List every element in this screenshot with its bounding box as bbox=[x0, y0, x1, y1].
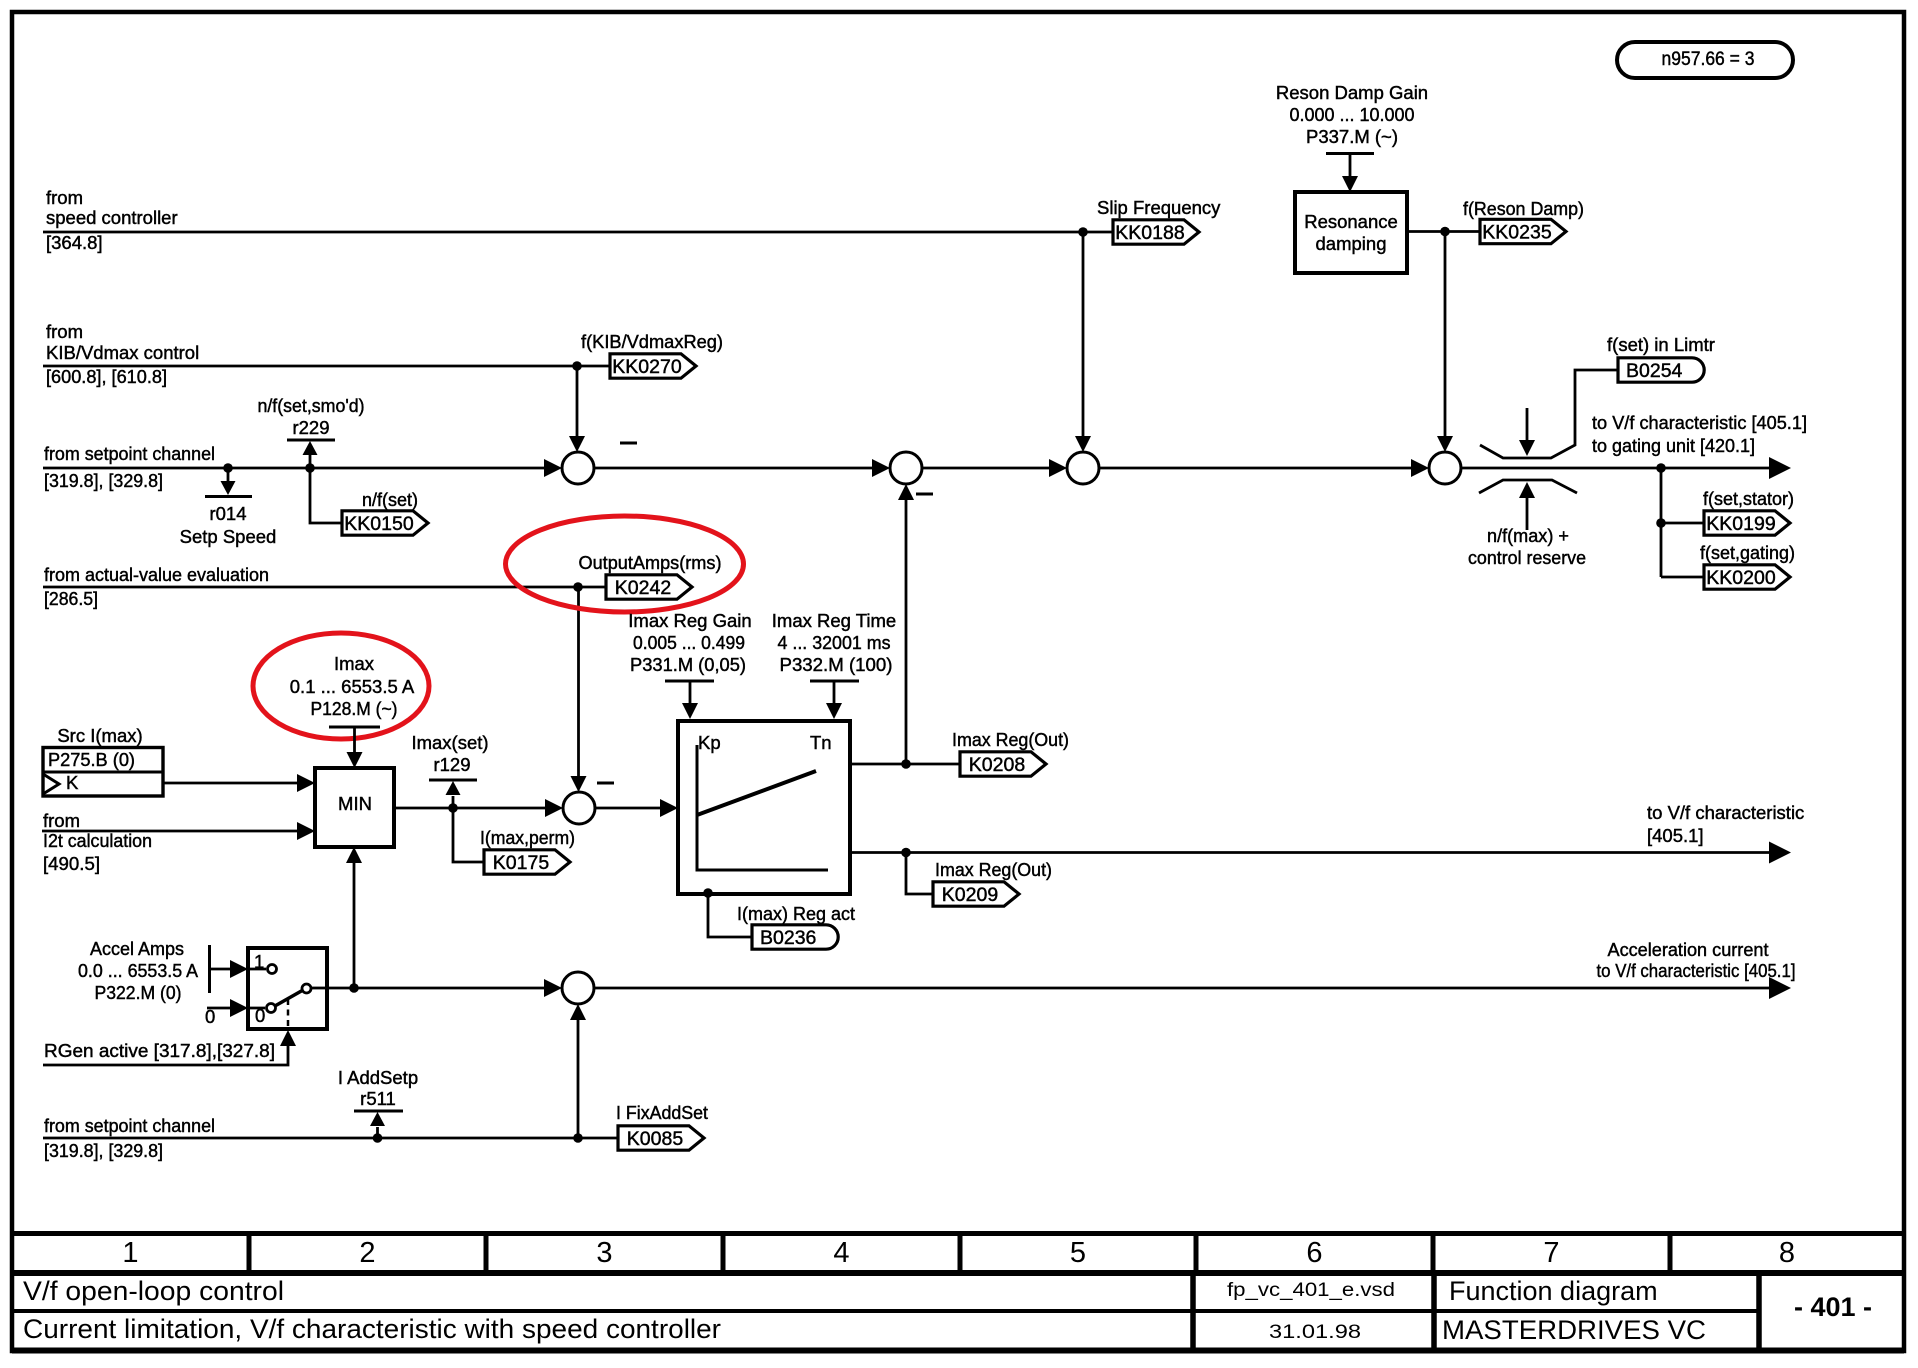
svg-text:5: 5 bbox=[1070, 1237, 1086, 1269]
svg-text:from setpoint channel: from setpoint channel bbox=[44, 1115, 215, 1136]
svg-text:K0209: K0209 bbox=[942, 884, 998, 906]
svg-text:K0175: K0175 bbox=[493, 852, 550, 874]
svg-text:1: 1 bbox=[122, 1237, 138, 1269]
svg-text:from actual-value evaluation: from actual-value evaluation bbox=[44, 564, 269, 585]
svg-text:4 ... 32001 ms: 4 ... 32001 ms bbox=[778, 632, 891, 653]
svg-text:speed controller: speed controller bbox=[46, 207, 178, 228]
svg-text:Slip Frequency: Slip Frequency bbox=[1097, 197, 1221, 218]
svg-text:[364.8]: [364.8] bbox=[46, 232, 103, 253]
svg-text:Accel Amps: Accel Amps bbox=[90, 938, 184, 959]
svg-text:from setpoint channel: from setpoint channel bbox=[44, 443, 215, 464]
svg-text:r229: r229 bbox=[292, 417, 329, 438]
svg-text:[490.5]: [490.5] bbox=[43, 853, 100, 874]
svg-text:control reserve: control reserve bbox=[1468, 547, 1586, 568]
svg-text:B0236: B0236 bbox=[760, 927, 816, 949]
svg-text:[286.5]: [286.5] bbox=[44, 588, 98, 609]
svg-text:2: 2 bbox=[359, 1237, 375, 1269]
svg-text:[600.8], [610.8]: [600.8], [610.8] bbox=[46, 366, 167, 387]
svg-text:to gating unit [420.1]: to gating unit [420.1] bbox=[1592, 435, 1755, 456]
svg-text:[405.1]: [405.1] bbox=[1647, 825, 1704, 846]
svg-text:P337.M (~): P337.M (~) bbox=[1306, 126, 1398, 147]
svg-text:P322.M (0): P322.M (0) bbox=[95, 982, 182, 1003]
svg-text:r129: r129 bbox=[433, 754, 470, 775]
svg-text:0: 0 bbox=[205, 1006, 215, 1027]
svg-text:fp_vc_401_e.vsd: fp_vc_401_e.vsd bbox=[1227, 1280, 1395, 1301]
svg-text:f(set,stator): f(set,stator) bbox=[1703, 488, 1794, 509]
svg-text:I(max,perm): I(max,perm) bbox=[480, 827, 575, 848]
svg-text:f(set) in Limtr: f(set) in Limtr bbox=[1607, 334, 1715, 355]
svg-text:P331.M (0,05): P331.M (0,05) bbox=[630, 654, 746, 675]
svg-text:to V/f characteristic: to V/f characteristic bbox=[1647, 802, 1804, 823]
svg-text:0.1 ... 6553.5 A: 0.1 ... 6553.5 A bbox=[290, 676, 415, 697]
svg-text:P275.B (0): P275.B (0) bbox=[48, 749, 135, 770]
svg-text:KIB/Vdmax control: KIB/Vdmax control bbox=[46, 342, 199, 363]
svg-text:0.0 ... 6553.5 A: 0.0 ... 6553.5 A bbox=[78, 960, 199, 981]
svg-text:KK0200: KK0200 bbox=[1706, 567, 1776, 589]
svg-text:n/f(max) +: n/f(max) + bbox=[1487, 525, 1569, 546]
svg-text:4: 4 bbox=[833, 1237, 849, 1269]
svg-text:6: 6 bbox=[1306, 1237, 1322, 1269]
svg-text:from: from bbox=[46, 187, 83, 208]
svg-text:3: 3 bbox=[596, 1237, 612, 1269]
svg-text:7: 7 bbox=[1543, 1237, 1559, 1269]
svg-text:0.005 ... 0.499: 0.005 ... 0.499 bbox=[633, 632, 745, 653]
svg-text:P128.M (~): P128.M (~) bbox=[311, 698, 398, 719]
svg-text:Acceleration current: Acceleration current bbox=[1608, 939, 1769, 960]
svg-text:Imax Reg(Out): Imax Reg(Out) bbox=[952, 729, 1069, 750]
svg-text:from: from bbox=[43, 810, 80, 831]
svg-text:KK0270: KK0270 bbox=[612, 356, 682, 378]
svg-text:B0254: B0254 bbox=[1626, 360, 1683, 382]
svg-text:Setp Speed: Setp Speed bbox=[180, 526, 277, 547]
svg-text:n957.66 = 3: n957.66 = 3 bbox=[1662, 48, 1755, 70]
svg-text:8: 8 bbox=[1779, 1237, 1795, 1269]
svg-text:[319.8], [329.8]: [319.8], [329.8] bbox=[44, 470, 163, 491]
svg-text:r014: r014 bbox=[209, 503, 246, 524]
svg-text:- 401 -: - 401 - bbox=[1794, 1292, 1872, 1322]
svg-text:Imax Reg Time: Imax Reg Time bbox=[772, 610, 896, 631]
svg-text:Imax(set): Imax(set) bbox=[411, 732, 488, 753]
svg-text:[319.8], [329.8]: [319.8], [329.8] bbox=[44, 1140, 163, 1161]
svg-text:KK0235: KK0235 bbox=[1482, 222, 1552, 244]
svg-text:K: K bbox=[66, 772, 79, 793]
svg-text:f(KIB/VdmaxReg): f(KIB/VdmaxReg) bbox=[581, 331, 723, 352]
svg-text:Imax: Imax bbox=[334, 653, 375, 674]
svg-text:KK0188: KK0188 bbox=[1115, 222, 1184, 244]
svg-text:MASTERDRIVES VC: MASTERDRIVES VC bbox=[1442, 1315, 1706, 1345]
svg-text:I2t calculation: I2t calculation bbox=[43, 830, 152, 851]
svg-text:Resonance: Resonance bbox=[1304, 211, 1398, 232]
svg-text:I AddSetp: I AddSetp bbox=[338, 1067, 418, 1088]
svg-text:31.01.98: 31.01.98 bbox=[1269, 1322, 1361, 1343]
svg-text:0.000 ... 10.000: 0.000 ... 10.000 bbox=[1290, 104, 1415, 125]
svg-text:n/f(set): n/f(set) bbox=[362, 489, 418, 510]
svg-text:P332.M (100): P332.M (100) bbox=[780, 654, 893, 675]
svg-text:Reson Damp Gain: Reson Damp Gain bbox=[1276, 82, 1428, 103]
svg-text:MIN: MIN bbox=[338, 793, 372, 814]
svg-text:n/f(set,smo'd): n/f(set,smo'd) bbox=[258, 395, 365, 416]
svg-text:r511: r511 bbox=[360, 1088, 396, 1109]
svg-text:Tn: Tn bbox=[810, 732, 832, 753]
svg-text:RGen active [317.8],[327.8]: RGen active [317.8],[327.8] bbox=[44, 1040, 275, 1061]
svg-text:Imax Reg(Out): Imax Reg(Out) bbox=[935, 859, 1052, 880]
svg-text:K0208: K0208 bbox=[969, 754, 1025, 776]
svg-text:Imax Reg Gain: Imax Reg Gain bbox=[628, 610, 751, 631]
svg-text:from: from bbox=[46, 321, 83, 342]
svg-text:I(max) Reg act: I(max) Reg act bbox=[737, 903, 855, 924]
svg-text:damping: damping bbox=[1316, 233, 1387, 254]
svg-text:K0085: K0085 bbox=[627, 1128, 684, 1150]
svg-text:to V/f characteristic [405.1]: to V/f characteristic [405.1] bbox=[1597, 960, 1796, 981]
svg-text:K0242: K0242 bbox=[615, 577, 671, 599]
svg-text:to V/f characteristic [405.1]: to V/f characteristic [405.1] bbox=[1592, 412, 1807, 433]
svg-text:Function diagram: Function diagram bbox=[1449, 1276, 1658, 1306]
svg-text:f(Reson Damp): f(Reson Damp) bbox=[1463, 198, 1584, 219]
svg-text:OutputAmps(rms): OutputAmps(rms) bbox=[579, 552, 722, 573]
svg-text:Src I(max): Src I(max) bbox=[57, 725, 142, 746]
svg-text:I FixAddSet: I FixAddSet bbox=[616, 1102, 708, 1123]
svg-text:KK0150: KK0150 bbox=[344, 513, 414, 535]
svg-text:Kp: Kp bbox=[698, 732, 721, 753]
svg-text:V/f open-loop control: V/f open-loop control bbox=[23, 1276, 284, 1306]
svg-text:Current limitation, V/f charac: Current limitation, V/f characteristic w… bbox=[23, 1314, 721, 1344]
svg-text:KK0199: KK0199 bbox=[1706, 513, 1775, 535]
svg-text:f(set,gating): f(set,gating) bbox=[1700, 542, 1795, 563]
